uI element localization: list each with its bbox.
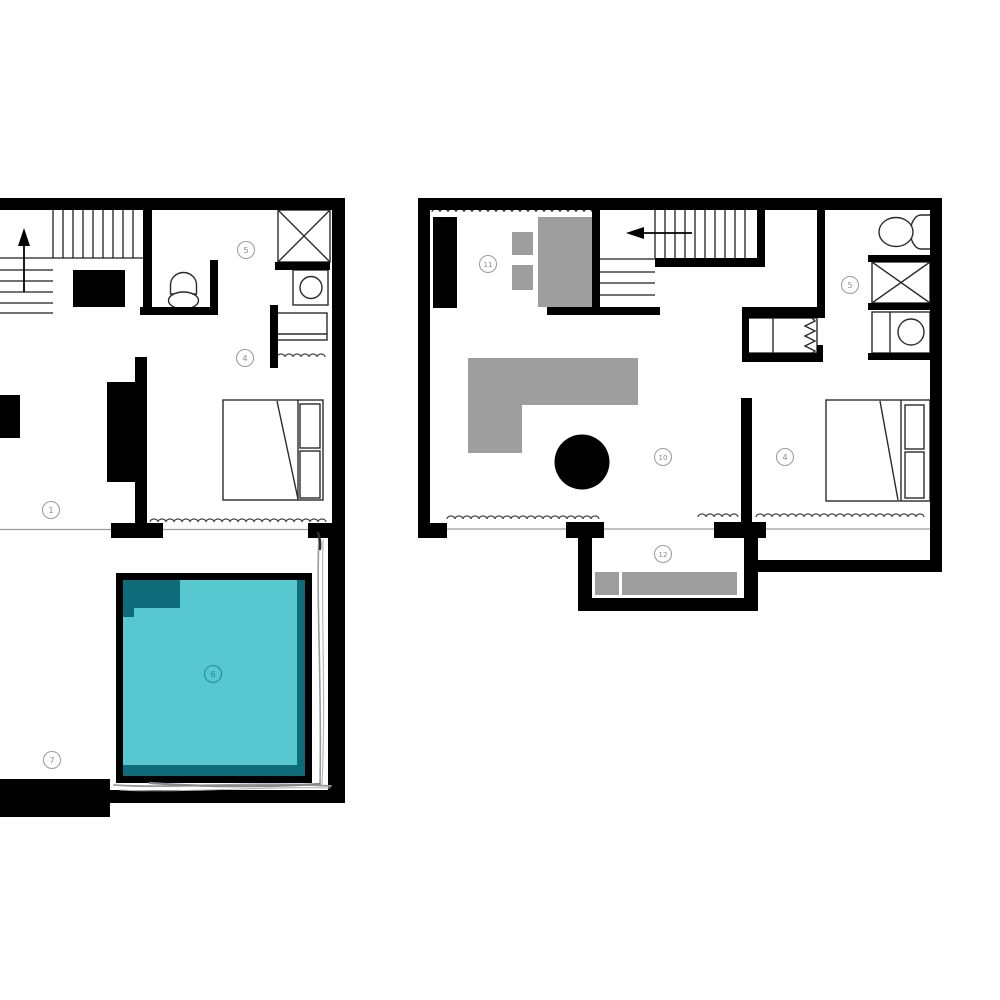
- stair-treads-upper-flight: [53, 210, 133, 258]
- tall-cabinet: [433, 217, 457, 308]
- left-arrow-icon: [626, 227, 692, 239]
- room-label-bedroom-lower: 4: [237, 350, 254, 367]
- svg-text:7: 7: [49, 756, 54, 765]
- svg-text:1: 1: [48, 506, 53, 515]
- svg-text:4: 4: [782, 453, 787, 462]
- closet: [748, 316, 817, 355]
- stair-treads-lower-flight: [0, 270, 53, 313]
- room-label-bathroom-upper: 5: [842, 277, 859, 294]
- svg-text:5: 5: [847, 281, 852, 290]
- toilet-icon: [169, 273, 199, 310]
- bedroom-window: [756, 514, 924, 517]
- shower-box: [278, 210, 330, 262]
- room-label-kitchen: 11: [480, 256, 497, 273]
- room-label-living-lower: 1: [43, 502, 60, 519]
- shower-box: [872, 262, 930, 303]
- svg-text:12: 12: [659, 551, 668, 559]
- room-label-bedroom-upper: 4: [777, 449, 794, 466]
- sideboard: [0, 395, 20, 438]
- balcony-bench: [595, 572, 737, 595]
- hall-cabinet: [73, 270, 125, 307]
- stair-treads-upper-flight: [655, 210, 745, 258]
- bedroom-window: [150, 519, 326, 522]
- coffee-table: [555, 435, 610, 490]
- bed-lower: [223, 400, 323, 500]
- bed-upper: [826, 400, 930, 501]
- balcony-window: [698, 514, 738, 517]
- upper-floor-plan: 11 5 10 4 12: [418, 198, 942, 611]
- room-label-terrace: 7: [44, 752, 61, 769]
- room-label-balcony: 12: [655, 546, 672, 563]
- kitchen-stool: [512, 232, 533, 255]
- lower-floor-plan: 5 4 1 6 7: [0, 198, 345, 817]
- svg-text:5: 5: [243, 246, 248, 255]
- up-arrow-icon: [18, 228, 30, 292]
- closet-curtain: [277, 354, 325, 357]
- kitchen-stool: [512, 265, 533, 290]
- kitchen-furniture: [433, 217, 592, 308]
- floor-plan-page: 5 4 1 6 7: [0, 0, 1000, 1000]
- svg-text:11: 11: [484, 261, 493, 269]
- kitchen-island: [538, 217, 592, 307]
- stairs-upper: [600, 210, 745, 295]
- cabinet: [277, 313, 327, 340]
- svg-text:4: 4: [242, 354, 247, 363]
- washing-machine-icon: [872, 312, 930, 353]
- washing-machine-icon: [293, 270, 328, 305]
- room-label-living-upper: 10: [655, 449, 672, 466]
- svg-text:10: 10: [659, 454, 668, 462]
- tv-unit: [107, 382, 135, 482]
- floor-plan-canvas: 5 4 1 6 7: [0, 0, 1000, 1000]
- toilet-icon: [879, 215, 931, 249]
- room-label-bathroom-lower: 5: [238, 242, 255, 259]
- living-window: [447, 516, 599, 519]
- svg-text:6: 6: [210, 670, 215, 679]
- sofa: [468, 358, 638, 453]
- stair-treads-lower-flight: [600, 272, 655, 295]
